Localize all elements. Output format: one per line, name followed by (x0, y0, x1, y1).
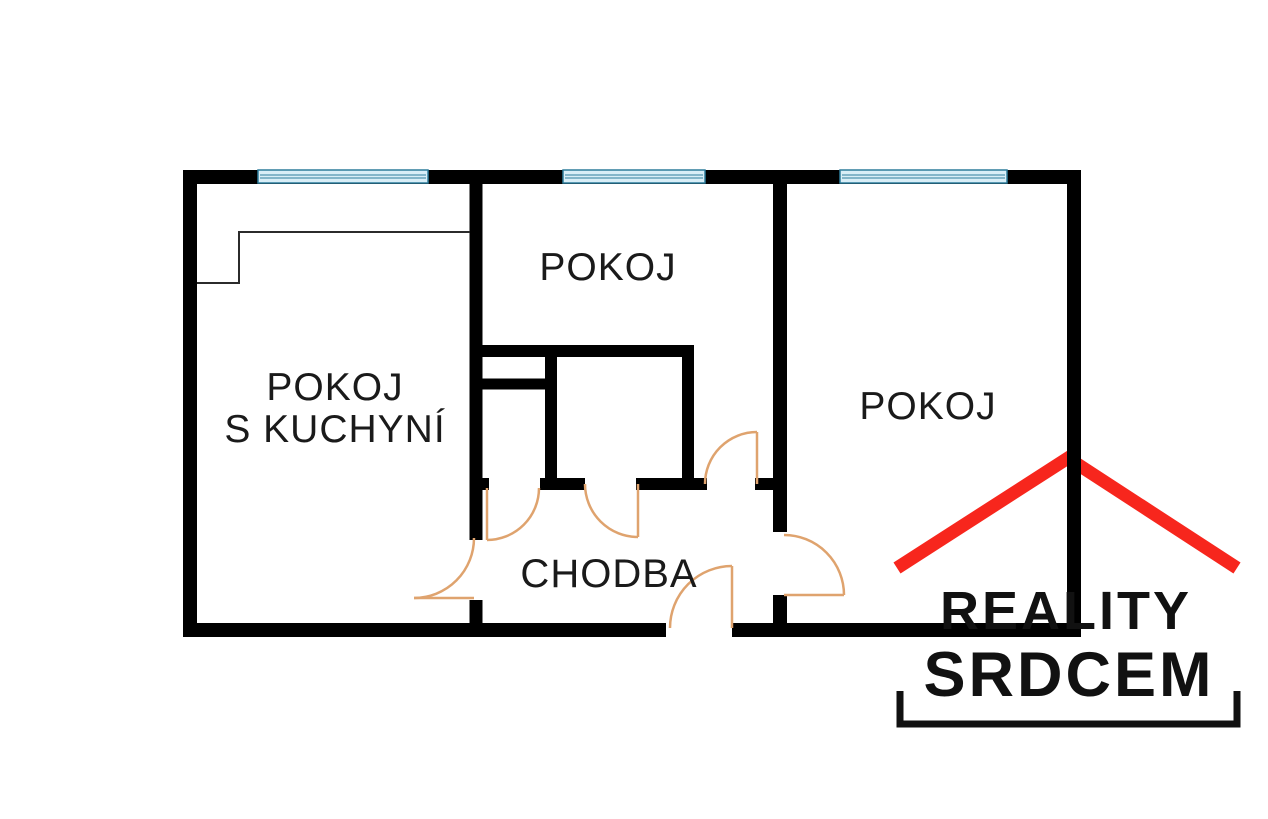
room-label-living-kitchen-line1: POKOJ (224, 367, 445, 409)
door-wc (487, 488, 539, 540)
windows (258, 170, 1007, 183)
floor-plan-page: POKOJ S KUCHYNÍ POKOJ POKOJ CHODBA REALI… (0, 0, 1268, 819)
logo-text-srdcem: SRDCEM (923, 644, 1214, 707)
room-label-room-top: POKOJ (539, 247, 676, 289)
door-middle-room (705, 432, 757, 484)
entry-door-gap (666, 622, 732, 638)
room-label-living-kitchen-line2: S KUCHYNÍ (224, 409, 445, 451)
room-label-living-kitchen: POKOJ S KUCHYNÍ (224, 367, 445, 451)
door-living-room (414, 538, 474, 598)
door-right-room (784, 535, 844, 595)
window-2 (563, 170, 705, 183)
door-closet (585, 484, 638, 537)
kitchen-counter-outline (197, 232, 470, 283)
window-3 (840, 170, 1007, 183)
room-label-hallway: CHODBA (520, 553, 697, 595)
room-label-room-right: POKOJ (859, 386, 996, 428)
window-1 (258, 170, 428, 183)
logo-text-reality: REALITY (940, 584, 1192, 638)
